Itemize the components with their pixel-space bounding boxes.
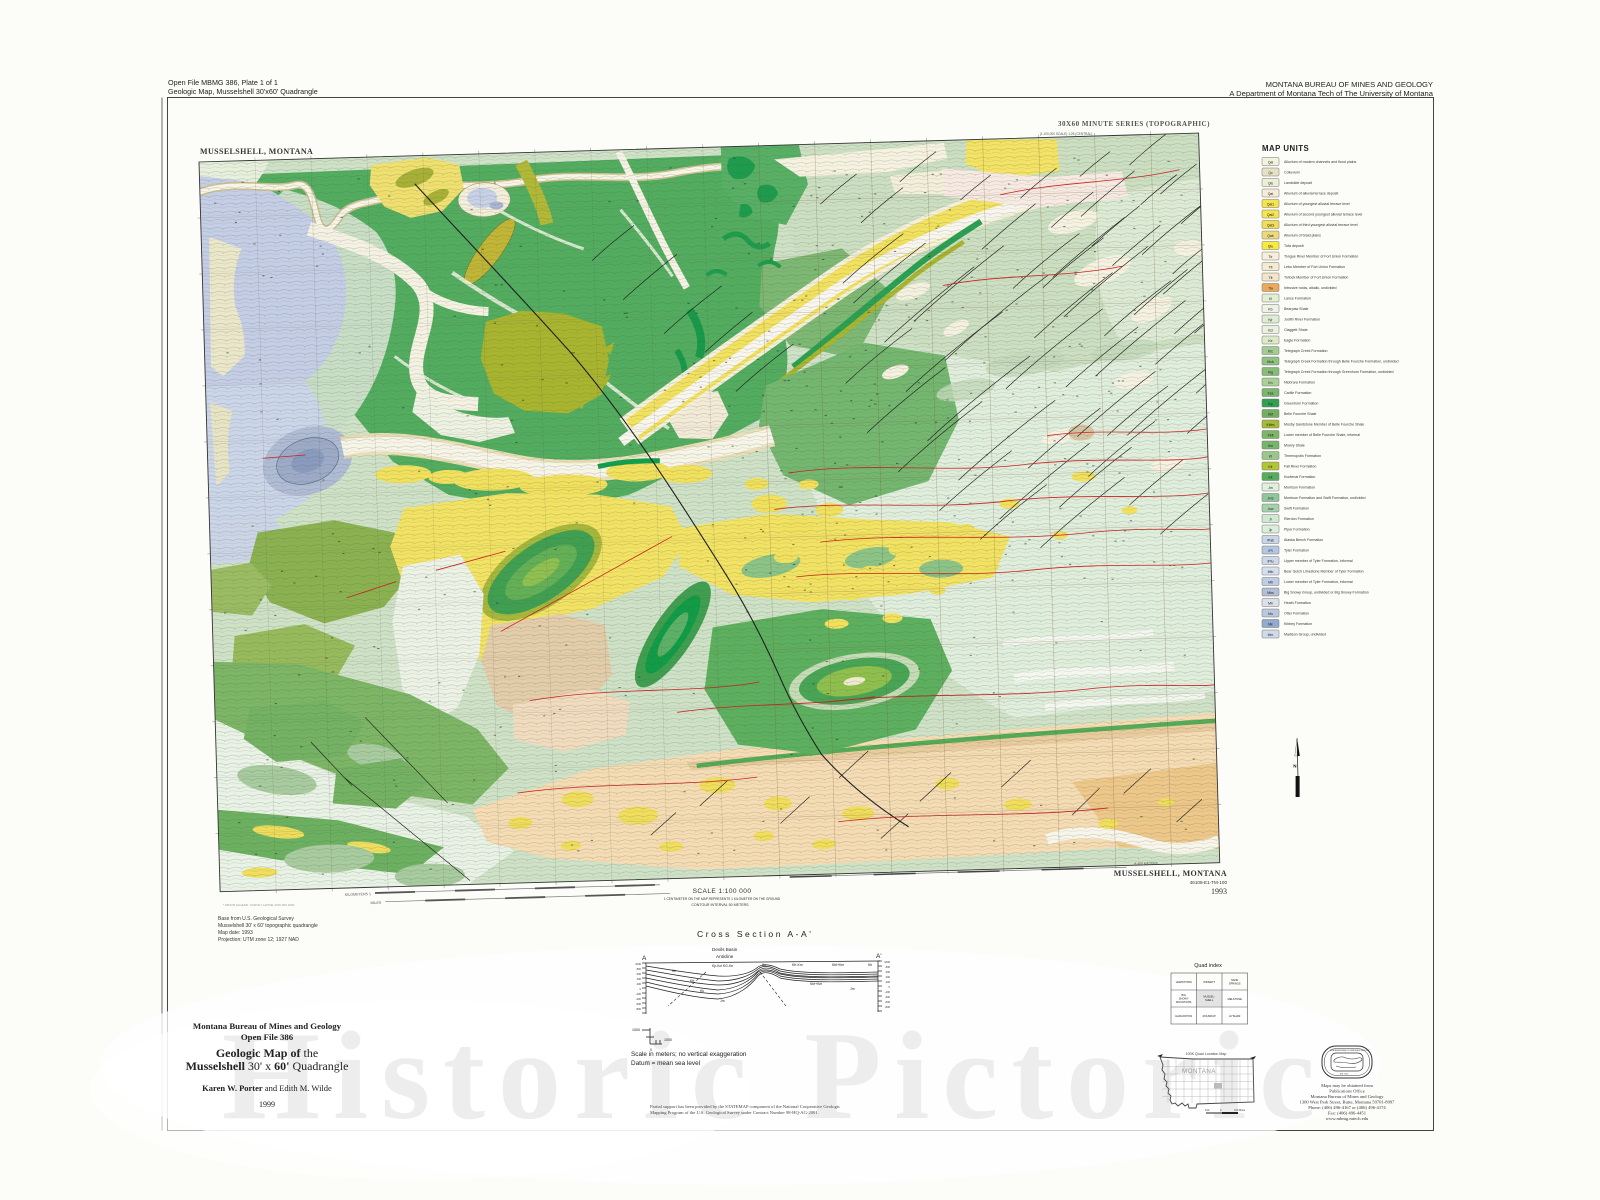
svg-text:Colluvium: Colluvium (1284, 171, 1300, 175)
svg-text:CONTOUR INTERVAL 50 METERS: CONTOUR INTERVAL 50 METERS (691, 903, 749, 907)
svg-text:Qat3: Qat3 (1267, 223, 1274, 227)
svg-text:Mosby Sandstone Member of Bell: Mosby Sandstone Member of Belle Fourche … (1284, 423, 1364, 427)
svg-text:Kk: Kk (700, 989, 704, 993)
svg-text:Kbfm: Kbfm (1267, 423, 1275, 427)
svg-text:Belle Fourche Shale: Belle Fourche Shale (1284, 412, 1316, 416)
svg-text:Tfl: Tfl (1269, 265, 1273, 269)
svg-text:Historic Pictoric: Historic Pictoric (222, 1007, 1328, 1146)
svg-text:1 CENTIMETER ON THE MAP REPRES: 1 CENTIMETER ON THE MAP REPRESENTS 1 KIL… (664, 897, 781, 901)
svg-text:Fall River Formation: Fall River Formation (1284, 465, 1316, 469)
svg-text:800: 800 (637, 967, 642, 971)
svg-text:Mo: Mo (1268, 612, 1273, 616)
svg-text:SAND: SAND (1231, 978, 1238, 982)
svg-text:400: 400 (886, 975, 891, 979)
svg-text:Kn: Kn (1268, 381, 1272, 385)
svg-text:Kjr-Kcl KG-Ke: Kjr-Kcl KG-Ke (712, 964, 733, 968)
svg-text:Kk: Kk (1269, 475, 1273, 479)
svg-text:Kbf+Km: Kbf+Km (832, 963, 844, 967)
svg-text:Lance Formation: Lance Formation (1284, 297, 1311, 301)
svg-text:SPRINGS: SPRINGS (1229, 982, 1241, 986)
svg-text:Alluvium of third youngest all: Alluvium of third youngest alluvial terr… (1284, 223, 1358, 227)
svg-text:Lebo Member of Fort Union Form: Lebo Member of Fort Union Formation (1284, 265, 1345, 269)
svg-text:Mbs: Mbs (1267, 591, 1274, 595)
svg-text:Qls: Qls (1268, 181, 1273, 185)
svg-text:Kl: Kl (1269, 297, 1272, 301)
svg-text:1000: 1000 (632, 1028, 640, 1032)
svg-text:Kibbey Formation: Kibbey Formation (1284, 622, 1312, 626)
svg-text:Kbf: Kbf (1268, 412, 1273, 416)
svg-text:1000: 1000 (635, 962, 641, 966)
svg-text:Open File 386: Open File 386 (241, 1032, 294, 1042)
svg-text:MONTANA BUREAU OF MINES AND GE: MONTANA BUREAU OF MINES AND GEOLOGY (1330, 1049, 1370, 1052)
svg-text:Tongue River Member of Fort Un: Tongue River Member of Fort Union Format… (1284, 255, 1358, 259)
svg-text:Qat1: Qat1 (1267, 202, 1274, 206)
svg-text:Kbfl: Kbfl (1268, 433, 1274, 437)
svg-text:Qat2: Qat2 (1267, 213, 1274, 217)
svg-text:SCALE 1:100 000: SCALE 1:100 000 (693, 888, 752, 895)
svg-text:Cross Section A-A': Cross Section A-A' (697, 929, 813, 939)
svg-text:Qal: Qal (1268, 160, 1274, 164)
svg-text:HARLOWTON: HARLOWTON (1175, 1014, 1192, 1018)
svg-text:Devils Basin: Devils Basin (712, 947, 738, 952)
svg-text:Qat: Qat (1268, 192, 1274, 196)
svg-text:-800: -800 (636, 1007, 642, 1011)
svg-text:Telegraph Creek Formation: Telegraph Creek Formation (1284, 349, 1328, 353)
svg-text:Anticline: Anticline (716, 954, 734, 959)
svg-text:Alluvium of braid plains: Alluvium of braid plains (1284, 234, 1321, 238)
svg-text:Musselshell 30' x 60' topograp: Musselshell 30' x 60' topographic quadra… (218, 923, 318, 929)
svg-text:Upper member of Tyler Formatio: Upper member of Tyler Formation, informa… (1284, 559, 1353, 563)
svg-text:Lower member of Belle Fourche: Lower member of Belle Fourche Shale, inf… (1284, 433, 1360, 437)
svg-text:Map date: 1993: Map date: 1993 (218, 930, 253, 936)
svg-text:Jm: Jm (1268, 486, 1273, 490)
svg-text:Thermopolis Formation: Thermopolis Formation (1284, 454, 1321, 458)
svg-text:Morrison Formation and Swift F: Morrison Formation and Swift Formation, … (1284, 496, 1366, 500)
svg-text:Mtb: Mtb (1268, 570, 1274, 574)
svg-text:EST. 1919: EST. 1919 (1340, 1074, 1348, 1076)
svg-text:Bearpaw Shale: Bearpaw Shale (1284, 307, 1308, 311)
svg-text:Jms: Jms (1267, 496, 1274, 500)
svg-text:HYSHAM: HYSHAM (1229, 1014, 1240, 1018)
svg-text:Quad index: Quad index (1194, 963, 1222, 969)
svg-text:Geologic Map of the: Geologic Map of the (216, 1046, 318, 1060)
svg-text:Kb: Kb (868, 963, 872, 967)
svg-text:Projection: UTM zone 12; 1927: Projection: UTM zone 12; 1927 NAD (218, 937, 299, 943)
svg-text:Morrison Formation: Morrison Formation (1284, 486, 1315, 490)
svg-text:www.mbmg.mtech.edu: www.mbmg.mtech.edu (1326, 1116, 1369, 1121)
svg-text:Alaska Bench Formation: Alaska Bench Formation (1284, 538, 1323, 542)
svg-text:1993: 1993 (1211, 887, 1227, 896)
svg-text:Ktcb: Ktcb (1267, 360, 1274, 364)
svg-text:600: 600 (637, 972, 642, 976)
svg-text:A': A' (876, 953, 882, 960)
svg-text:Mh: Mh (1268, 601, 1273, 605)
svg-text:LEWISTOWN: LEWISTOWN (1176, 980, 1192, 984)
svg-text:Geologic Map, Musselshell 30'x: Geologic Map, Musselshell 30'x60' Quadra… (168, 87, 318, 96)
svg-text:Ke: Ke (762, 963, 766, 967)
svg-text:30X60 MINUTE SERIES (TOPOGRAPH: 30X60 MINUTE SERIES (TOPOGRAPHIC) (1058, 120, 1210, 128)
svg-text:600: 600 (886, 970, 891, 974)
svg-text:MILES: MILES (370, 901, 381, 905)
svg-text:-800: -800 (885, 1005, 891, 1009)
svg-text:Rierdon Formation: Rierdon Formation (1284, 517, 1314, 521)
svg-text:400: 400 (637, 977, 642, 981)
svg-text:Km: Km (1268, 444, 1273, 448)
svg-text:Greenhorn Formation: Greenhorn Formation (1284, 402, 1318, 406)
svg-text:Jm: Jm (720, 999, 725, 1003)
svg-text:Bear Gulch Limestone Member of: Bear Gulch Limestone Member of Tyler For… (1284, 570, 1364, 574)
svg-text:BIG: BIG (1181, 993, 1185, 997)
svg-text:Phone: (406) 496-4167 or (406): Phone: (406) 496-4167 or (406) 496-4174 (1308, 1105, 1386, 1110)
svg-text:Jp: Jp (1269, 528, 1273, 532)
svg-text:MOUNTAINS: MOUNTAINS (1176, 1000, 1192, 1004)
svg-text:Maps may be obtained from: Maps may be obtained from (1321, 1083, 1373, 1088)
svg-text:100: 100 (1205, 1108, 1210, 1112)
svg-text:Carlile Formation: Carlile Formation (1284, 391, 1311, 395)
svg-text:MONTANA: MONTANA (1182, 1068, 1216, 1075)
svg-text:Judith River Formation: Judith River Formation (1284, 318, 1320, 322)
svg-text:Montana Bureau of Mines and Ge: Montana Bureau of Mines and Geology (1310, 1094, 1384, 1099)
svg-text:A Department of Montana Tech o: A Department of Montana Tech of The Univ… (1229, 89, 1433, 98)
svg-text:Heath Formation: Heath Formation (1284, 601, 1311, 605)
svg-text:-400: -400 (636, 997, 642, 1001)
svg-text:Tft: Tft (1269, 276, 1273, 280)
svg-text:Alluvium of alluvial terrace d: Alluvium of alluvial terrace deposit (1284, 192, 1338, 196)
svg-text:MELSTONE: MELSTONE (1228, 997, 1242, 1001)
svg-text:8 400 METERS: 8 400 METERS (1134, 861, 1158, 866)
svg-text:IPt: IPt (1268, 549, 1272, 553)
svg-text:Ktc: Ktc (1268, 349, 1273, 353)
svg-text:Karen W. Porter and Edith M. W: Karen W. Porter and Edith M. Wilde (202, 1083, 332, 1093)
svg-text:MAP UNITS: MAP UNITS (1262, 144, 1309, 153)
svg-text:-200: -200 (885, 990, 891, 994)
svg-text:800: 800 (886, 965, 891, 969)
svg-text:Kootenai Formation: Kootenai Formation (1284, 475, 1315, 479)
svg-text:Kg: Kg (1268, 402, 1272, 406)
svg-text:Kb: Kb (1268, 307, 1272, 311)
svg-text:Publications Office: Publications Office (1329, 1089, 1365, 1094)
svg-text:N: N (1293, 764, 1296, 769)
svg-text:Kt: Kt (1269, 454, 1272, 458)
svg-text:Jsw: Jsw (1268, 507, 1274, 511)
svg-text:Alluvium of modern channels an: Alluvium of modern channels and flood pl… (1284, 160, 1357, 164)
svg-text:WINNETT: WINNETT (1203, 980, 1215, 984)
svg-text:Scale in meters; no vertical e: Scale in meters; no vertical exaggeratio… (631, 1051, 747, 1058)
svg-text:Base from U.S. Geological Surv: Base from U.S. Geological Survey (218, 916, 294, 922)
svg-text:ROUNDUP: ROUNDUP (1203, 1014, 1216, 1018)
svg-text:Alluvium of youngest alluvial: Alluvium of youngest alluvial terrace le… (1284, 202, 1350, 206)
svg-text:Open File MBMG 386, Plate 1 of: Open File MBMG 386, Plate 1 of 1 (168, 78, 278, 87)
svg-text:Piper Formation: Piper Formation (1284, 528, 1310, 532)
svg-text:Eagle Formation: Eagle Formation (1284, 339, 1310, 343)
svg-text:Fax: (406) 496-4451: Fax: (406) 496-4451 (1328, 1111, 1367, 1116)
svg-text:SHELL: SHELL (1205, 998, 1214, 1002)
svg-text:200: 200 (637, 982, 642, 986)
svg-text:-200: -200 (636, 992, 642, 996)
svg-text:MUSSEL-: MUSSEL- (1203, 995, 1215, 999)
svg-text:Telegraph Creek Formation thro: Telegraph Creek Formation through Greenh… (1284, 370, 1393, 374)
svg-text:Landslide deposit: Landslide deposit (1284, 181, 1312, 185)
svg-text:Claggett Shale: Claggett Shale (1284, 328, 1308, 332)
svg-text:Kbf+Km: Kbf+Km (810, 982, 822, 986)
svg-text:46108-E1-TM-100: 46108-E1-TM-100 (1190, 880, 1228, 885)
svg-text:Telegraph Creek Formation thro: Telegraph Creek Formation through Belle … (1284, 360, 1398, 364)
svg-text:Datum = mean sea level: Datum = mean sea level (631, 1060, 700, 1067)
svg-text:Kca: Kca (1268, 391, 1274, 395)
svg-text:Kcl: Kcl (1268, 328, 1273, 332)
svg-text:IPab: IPab (1267, 538, 1274, 542)
svg-text:Montana Bureau of Mines and Ge: Montana Bureau of Mines and Geology (193, 1021, 342, 1031)
svg-text:Qab: Qab (1267, 234, 1274, 238)
svg-text:100 Miles: 100 Miles (1234, 1108, 1246, 1112)
svg-text:Partial support has been provi: Partial support has been provided by the… (650, 1104, 840, 1109)
svg-text:Jm: Jm (850, 987, 855, 991)
svg-text:Otter Formation: Otter Formation (1284, 612, 1309, 616)
svg-text:Intrusive rocks, alkalic, undi: Intrusive rocks, alkalic, undivided (1284, 286, 1337, 290)
svg-text:-600: -600 (885, 1000, 891, 1004)
svg-text:IPtu: IPtu (1267, 559, 1273, 563)
svg-text:1000: 1000 (884, 960, 890, 964)
svg-text:Tullock Member of Fort Union F: Tullock Member of Fort Union Formation (1284, 276, 1348, 280)
svg-text:MUSSELSHELL, MONTANA: MUSSELSHELL, MONTANA (200, 147, 313, 156)
svg-text:Mowry Shale: Mowry Shale (1284, 444, 1305, 448)
svg-text:Qc: Qc (1268, 171, 1273, 175)
svg-text:MONTANA BUREAU OF MINES AND GE: MONTANA BUREAU OF MINES AND GEOLOGY (1266, 80, 1433, 89)
svg-text:Madison Group, undivided: Madison Group, undivided (1284, 633, 1326, 637)
svg-text:* MINOR LEGEND: SURVEY ALPINE: * MINOR LEGEND: SURVEY ALPINE 4700 900 1… (223, 903, 295, 907)
svg-text:(1:100,000 SCALE) 1:25 (CENTRA: (1:100,000 SCALE) 1:25 (CENTRAL) (1040, 132, 1093, 136)
svg-text:-600: -600 (636, 1002, 642, 1006)
svg-text:Mtl: Mtl (1268, 580, 1273, 584)
svg-text:SNOWY: SNOWY (1179, 997, 1189, 1001)
svg-text:Big Snowy Group, undivided or: Big Snowy Group, undivided or Big Snowy … (1284, 591, 1369, 595)
svg-text:Alluvium of second youngest al: Alluvium of second youngest alluvial ter… (1284, 213, 1363, 217)
svg-text:100K Quad Location Map: 100K Quad Location Map (1186, 1052, 1227, 1056)
svg-text:Mapping Program of the U.S. Ge: Mapping Program of the U.S. Geological S… (650, 1110, 819, 1115)
svg-text:Niobrara Formation: Niobrara Formation (1284, 381, 1315, 385)
svg-text:Kb: Kb (672, 969, 676, 973)
svg-text:Mk: Mk (1268, 622, 1273, 626)
svg-text:Mm: Mm (1268, 633, 1274, 637)
svg-text:Swift Formation: Swift Formation (1284, 507, 1309, 511)
svg-text:Ke: Ke (1268, 339, 1272, 343)
svg-text:KILOMETERS 1: KILOMETERS 1 (345, 892, 371, 897)
svg-text:Kfr-Km: Kfr-Km (792, 963, 803, 967)
svg-text:Tyler Formation: Tyler Formation (1284, 549, 1309, 553)
svg-text:Lower member of Tyler Formatio: Lower member of Tyler Formation, informa… (1284, 580, 1353, 584)
svg-text:Ktg: Ktg (1268, 370, 1273, 374)
svg-text:200: 200 (886, 980, 891, 984)
svg-text:MUSSELSHELL, MONTANA: MUSSELSHELL, MONTANA (1114, 869, 1227, 878)
svg-text:Tufa deposit: Tufa deposit (1284, 244, 1304, 248)
svg-text:-400: -400 (885, 995, 891, 999)
svg-text:A: A (642, 955, 647, 962)
svg-text:Tia: Tia (1268, 286, 1273, 290)
svg-text:Qtu: Qtu (1268, 244, 1274, 248)
svg-text:1999: 1999 (259, 1100, 275, 1109)
svg-text:1000: 1000 (664, 1038, 672, 1042)
svg-text:Musselshell 30' x 60' Quadrang: Musselshell 30' x 60' Quadrangle (186, 1059, 349, 1073)
